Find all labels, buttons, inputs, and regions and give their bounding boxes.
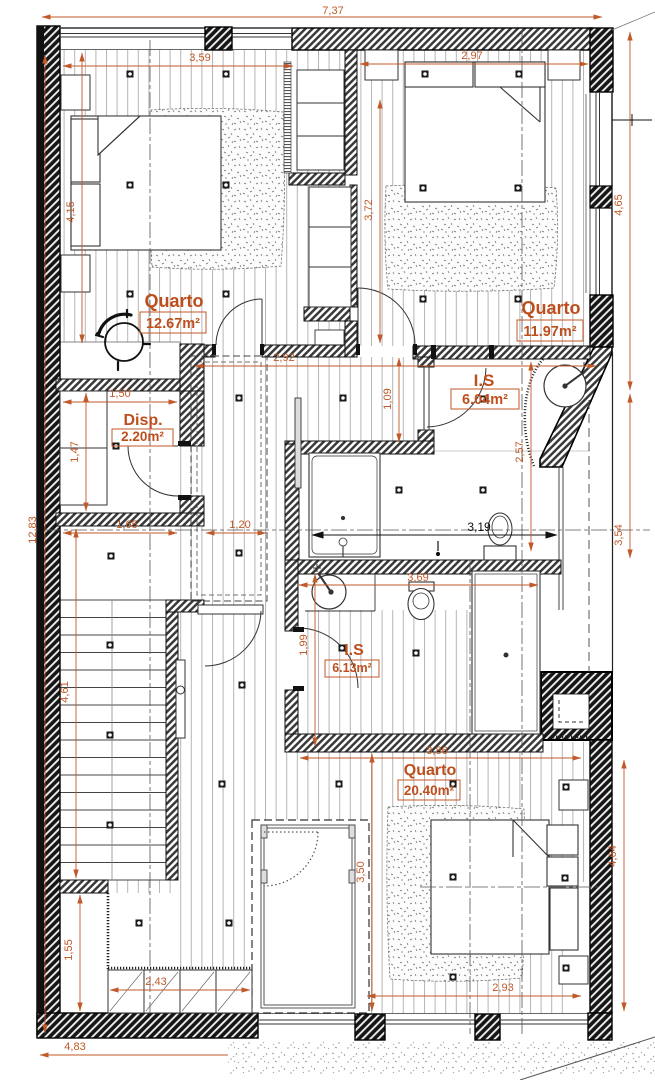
svg-text:2,92: 2,92 xyxy=(273,352,294,364)
svg-text:2.20m²: 2.20m² xyxy=(121,429,164,444)
svg-text:Quarto: Quarto xyxy=(144,291,203,311)
svg-text:3,50: 3,50 xyxy=(355,861,367,882)
svg-text:I.S: I.S xyxy=(474,371,495,390)
svg-text:4,83: 4,83 xyxy=(64,1041,85,1053)
svg-text:1,09: 1,09 xyxy=(382,388,394,409)
svg-text:1,20: 1,20 xyxy=(229,519,250,531)
svg-text:7,37: 7,37 xyxy=(322,5,343,17)
svg-text:3,19: 3,19 xyxy=(467,520,491,534)
svg-text:1,55: 1,55 xyxy=(63,939,75,960)
svg-text:4,15: 4,15 xyxy=(65,201,77,222)
svg-text:20.40m²: 20.40m² xyxy=(404,783,455,798)
svg-text:1,65: 1,65 xyxy=(116,519,137,531)
svg-text:1,47: 1,47 xyxy=(69,441,81,462)
svg-text:Quarto: Quarto xyxy=(404,762,457,779)
svg-text:3,86: 3,86 xyxy=(426,745,447,757)
svg-text:2,97: 2,97 xyxy=(461,50,482,62)
svg-text:I.S: I.S xyxy=(344,642,364,659)
svg-text:3,69: 3,69 xyxy=(407,572,428,584)
svg-text:2,43: 2,43 xyxy=(145,976,166,988)
svg-text:1,50: 1,50 xyxy=(109,388,130,400)
svg-text:6.13m²: 6.13m² xyxy=(332,661,372,675)
svg-text:11.97m²: 11.97m² xyxy=(523,324,576,340)
svg-text:2,93: 2,93 xyxy=(492,982,513,994)
svg-text:12.67m²: 12.67m² xyxy=(146,316,200,332)
svg-text:Quarto: Quarto xyxy=(521,298,580,318)
svg-text:4,64: 4,64 xyxy=(607,845,619,866)
svg-text:3,72: 3,72 xyxy=(363,199,375,220)
svg-text:3,54: 3,54 xyxy=(613,524,625,545)
svg-text:1,99: 1,99 xyxy=(298,634,310,655)
svg-text:3,59: 3,59 xyxy=(189,52,210,64)
svg-text:4,65: 4,65 xyxy=(613,194,625,215)
svg-text:4,61: 4,61 xyxy=(59,681,71,702)
svg-text:2,57: 2,57 xyxy=(514,441,526,462)
svg-text:6.04m²: 6.04m² xyxy=(462,392,508,408)
svg-text:Disp.: Disp. xyxy=(123,412,162,429)
svg-text:12,83: 12,83 xyxy=(27,516,39,544)
